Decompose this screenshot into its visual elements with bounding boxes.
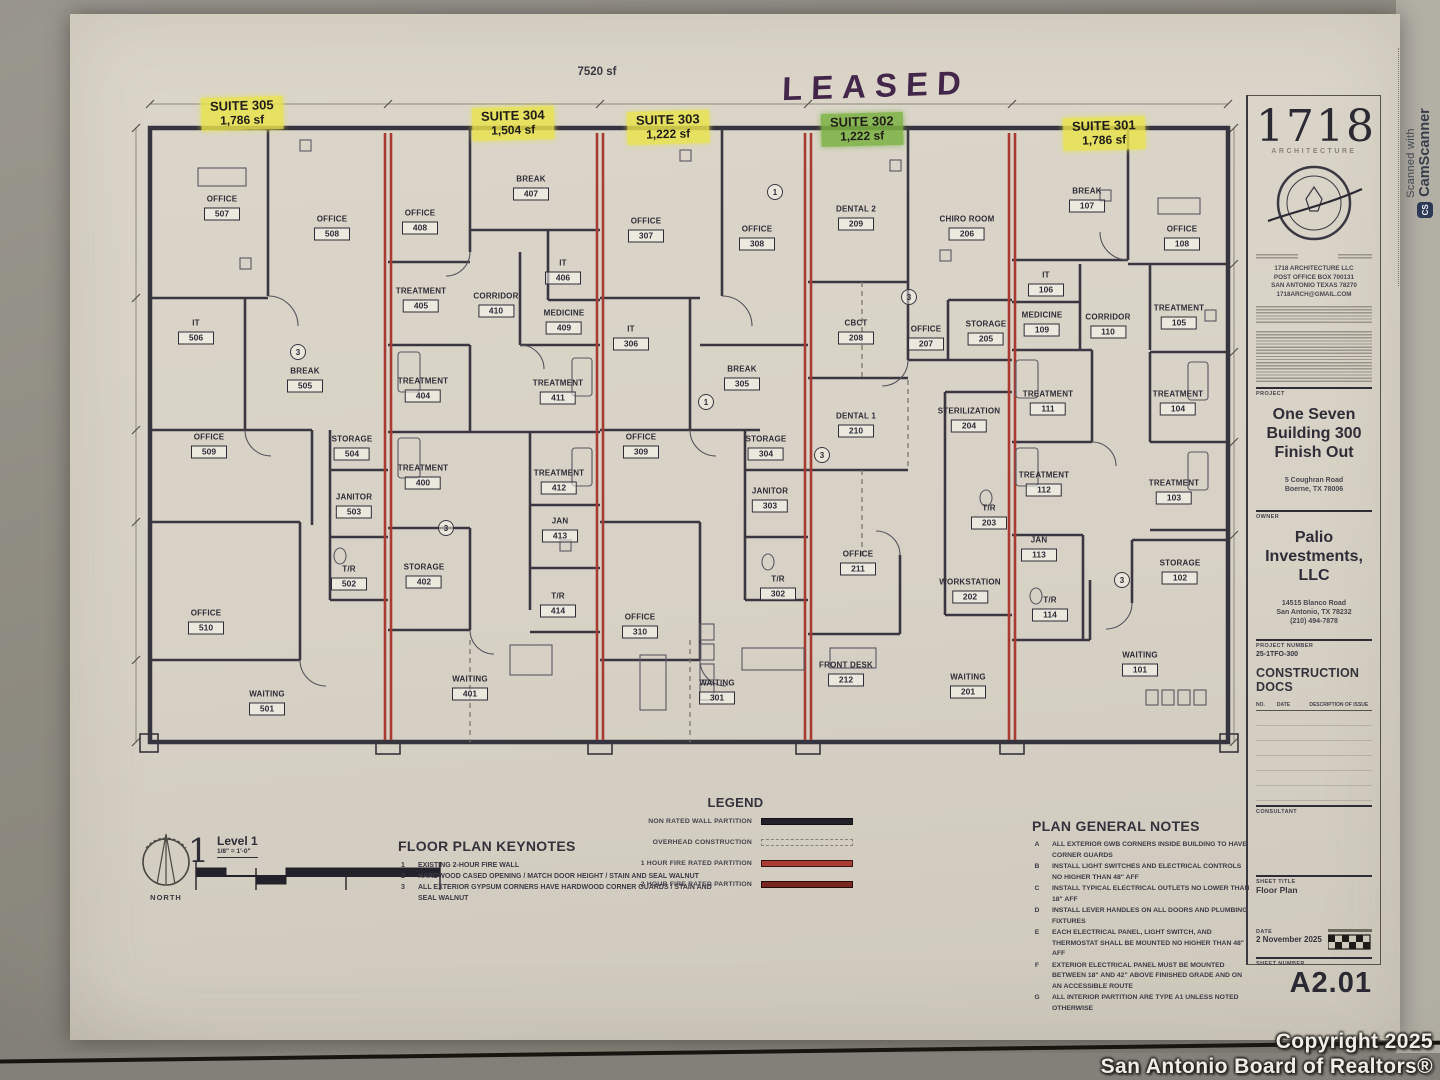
room-name: JAN — [542, 517, 578, 526]
project-number: 25-1TFO-300 — [1256, 651, 1372, 658]
revision-column: DESCRIPTION OF ISSUE — [1309, 702, 1372, 708]
room-label: OFFICE309 — [623, 433, 659, 460]
room-label: IT506 — [178, 319, 214, 346]
room-name: OFFICE — [908, 325, 944, 334]
room-number: 410 — [478, 305, 514, 318]
room-number: 402 — [406, 576, 442, 589]
room-number: 110 — [1090, 326, 1126, 339]
general-note-item: CINSTALL TYPICAL ELECTRICAL OUTLETS NO L… — [1032, 884, 1250, 905]
phase-title: CONSTRUCTION DOCS — [1256, 666, 1372, 694]
project-address-line: Boerne, TX 78006 — [1256, 485, 1372, 494]
room-label: CBCT208 — [838, 319, 874, 346]
seal-date-noise — [1256, 254, 1298, 259]
room-label: WAITING401 — [452, 675, 488, 702]
room-name: IT — [545, 259, 581, 268]
general-notes-list: AALL EXTERIOR GWB CORNERS INSIDE BUILDIN… — [1032, 840, 1250, 1014]
room-label: TREATMENT112 — [1019, 471, 1070, 498]
room-name: MEDICINE — [544, 309, 585, 318]
legend: LEGEND NON RATED WALL PARTITIONOVERHEAD … — [618, 795, 853, 902]
firm-address: 1718 ARCHITECTURE LLCPOST OFFICE BOX 700… — [1256, 265, 1372, 299]
room-label: BREAK107 — [1069, 187, 1105, 214]
room-label: T/R203 — [971, 504, 1007, 531]
suite-area: 1,786 sf — [210, 112, 274, 128]
room-name: BREAK — [287, 367, 323, 376]
room-number: 404 — [405, 390, 441, 403]
room-number: 310 — [622, 626, 658, 639]
room-label: BREAK305 — [724, 365, 760, 392]
legend-line-sample — [761, 881, 853, 888]
room-label: OFFICE310 — [622, 613, 658, 640]
room-label: JANITOR503 — [336, 493, 372, 520]
room-label: TREATMENT104 — [1153, 390, 1204, 417]
room-name: TREATMENT — [398, 377, 449, 386]
room-label: TREATMENT103 — [1149, 479, 1200, 506]
scanned-with-label: Scanned with — [1405, 128, 1417, 198]
room-name: STORAGE — [746, 435, 787, 444]
room-name: BREAK — [1069, 187, 1105, 196]
suite-area: 1,222 sf — [830, 128, 894, 144]
room-name: TREATMENT — [398, 464, 449, 473]
room-name: TREATMENT — [1149, 479, 1200, 488]
room-number: 112 — [1026, 484, 1062, 497]
room-label: TREATMENT111 — [1023, 390, 1074, 417]
room-label: BREAK505 — [287, 367, 323, 394]
room-label: OFFICE308 — [739, 225, 775, 252]
suite-tag: SUITE 3011,786 sf — [1063, 116, 1145, 151]
room-label: TREATMENT400 — [398, 464, 449, 491]
room-name: OFFICE — [402, 209, 438, 218]
legend-rows: NON RATED WALL PARTITIONOVERHEAD CONSTRU… — [618, 818, 853, 888]
room-number: 509 — [191, 446, 227, 459]
room-label: JAN413 — [542, 517, 578, 544]
room-name: STORAGE — [404, 563, 445, 572]
room-number: 505 — [287, 380, 323, 393]
legend-line-sample — [761, 818, 853, 825]
room-name: JANITOR — [336, 493, 372, 502]
camscanner-icon: CS — [1417, 202, 1433, 218]
room-number: 111 — [1030, 403, 1066, 416]
legend-label: OVERHEAD CONSTRUCTION — [653, 839, 752, 846]
room-name: T/R — [1032, 596, 1068, 605]
room-name: OFFICE — [1164, 225, 1200, 234]
room-name: CBCT — [838, 319, 874, 328]
room-number: 502 — [331, 578, 367, 591]
general-note-item: FEXTERIOR ELECTRICAL PANEL MUST BE MOUNT… — [1032, 961, 1250, 993]
room-label: OFFICE509 — [191, 433, 227, 460]
room-number: 409 — [546, 322, 582, 335]
room-name: CORRIDOR — [1085, 313, 1130, 322]
room-name: CORRIDOR — [473, 292, 518, 301]
revision-table-header: NO.DATEDESCRIPTION OF ISSUE — [1256, 702, 1372, 711]
legend-label: 2 HOUR FIRE RATED PARTITION — [641, 881, 752, 888]
room-label: JANITOR303 — [752, 487, 788, 514]
room-label: OFFICE207 — [908, 325, 944, 352]
room-name: TREATMENT — [396, 287, 447, 296]
room-label: CORRIDOR410 — [473, 292, 518, 319]
room-name: IT — [178, 319, 214, 328]
room-name: IT — [1028, 271, 1064, 280]
sheet-title: Floor Plan — [1256, 885, 1372, 895]
room-name: WAITING — [950, 673, 986, 682]
room-name: OFFICE — [204, 195, 240, 204]
camscanner-cutline — [1398, 48, 1399, 286]
room-name: TREATMENT — [1023, 390, 1074, 399]
firm-address-line: 1718 ARCHITECTURE LLC — [1256, 265, 1372, 274]
room-name: OFFICE — [622, 613, 658, 622]
architect-seal — [1256, 159, 1372, 251]
room-name: WAITING — [452, 675, 488, 684]
room-number: 103 — [1156, 492, 1192, 505]
room-label: OFFICE507 — [204, 195, 240, 222]
room-name: BREAK — [513, 175, 549, 184]
room-number: 105 — [1161, 317, 1197, 330]
room-number: 205 — [968, 333, 1004, 346]
room-number: 202 — [952, 591, 988, 604]
room-name: OFFICE — [314, 215, 350, 224]
room-number: 308 — [739, 238, 775, 251]
note-letter: E — [1032, 928, 1042, 960]
legend-row: OVERHEAD CONSTRUCTION — [618, 839, 853, 846]
project-name-line: Finish Out — [1256, 443, 1372, 462]
note-text: INSTALL LIGHT SWITCHES AND ELECTRICAL CO… — [1052, 862, 1250, 883]
room-label: CHIRO ROOM206 — [940, 215, 995, 242]
room-number: 411 — [540, 392, 576, 405]
room-label: JAN113 — [1021, 536, 1057, 563]
suite-tag: SUITE 3041,504 sf — [472, 106, 554, 141]
room-label: T/R302 — [760, 575, 796, 602]
room-number: 101 — [1122, 664, 1158, 677]
general-note-item: AALL EXTERIOR GWB CORNERS INSIDE BUILDIN… — [1032, 840, 1250, 861]
room-name: WORKSTATION — [939, 578, 1000, 587]
room-name: STORAGE — [332, 435, 373, 444]
plan-general-notes: PLAN GENERAL NOTES AALL EXTERIOR GWB COR… — [1032, 818, 1250, 1015]
room-label: STERILIZATION204 — [938, 407, 1000, 434]
note-text: INSTALL TYPICAL ELECTRICAL OUTLETS NO LO… — [1052, 884, 1250, 905]
room-number: 302 — [760, 588, 796, 601]
room-number: 408 — [402, 222, 438, 235]
room-name: WAITING — [249, 690, 285, 699]
room-label: OFFICE211 — [840, 550, 876, 577]
room-name: T/R — [760, 575, 796, 584]
note-text: EACH ELECTRICAL PANEL, LIGHT SWITCH, AND… — [1052, 928, 1250, 960]
note-letter: F — [1032, 961, 1042, 993]
keynote-bubble: 3 — [901, 289, 917, 305]
room-number: 107 — [1069, 200, 1105, 213]
room-name: JAN — [1021, 536, 1057, 545]
consultant-label: CONSULTANT — [1256, 809, 1372, 815]
general-note-item: BINSTALL LIGHT SWITCHES AND ELECTRICAL C… — [1032, 862, 1250, 883]
room-number: 406 — [545, 272, 581, 285]
room-label: WAITING501 — [249, 690, 285, 717]
room-label: STORAGE402 — [404, 563, 445, 590]
note-letter: A — [1032, 840, 1042, 861]
room-label: BREAK407 — [513, 175, 549, 202]
room-name: STERILIZATION — [938, 407, 1000, 416]
suite-tag: SUITE 3021,222 sf — [821, 112, 903, 147]
general-note-item: DINSTALL LEVER HANDLES ON ALL DOORS AND … — [1032, 906, 1250, 927]
room-name: MEDICINE — [1022, 311, 1063, 320]
room-name: BREAK — [724, 365, 760, 374]
room-name: JANITOR — [752, 487, 788, 496]
room-name: IT — [613, 325, 649, 334]
room-label: WAITING301 — [699, 679, 735, 706]
room-number: 510 — [188, 622, 224, 635]
floor-plan-sheet: OFFICE507OFFICE508IT506BREAK505OFFICE509… — [0, 0, 1440, 1080]
room-number: 113 — [1021, 549, 1057, 562]
room-number: 201 — [950, 686, 986, 699]
room-number: 109 — [1024, 324, 1060, 337]
suite-area: 1,504 sf — [481, 122, 545, 138]
room-number: 211 — [840, 563, 876, 576]
room-number: 508 — [314, 228, 350, 241]
suite-area: 1,222 sf — [636, 126, 700, 142]
note-letter: C — [1032, 884, 1042, 905]
firm-address-line: SAN ANTONIO TEXAS 78270 — [1256, 282, 1372, 291]
room-label: WORKSTATION202 — [939, 578, 1000, 605]
note-letter: B — [1032, 862, 1042, 883]
note-text: EXTERIOR ELECTRICAL PANEL MUST BE MOUNTE… — [1052, 961, 1250, 993]
room-name: OFFICE — [188, 609, 224, 618]
room-name: OFFICE — [191, 433, 227, 442]
architect-logo-subtitle: ARCHITECTURE — [1256, 148, 1372, 155]
room-number: 206 — [949, 228, 985, 241]
project-number-label: PROJECT NUMBER — [1256, 643, 1372, 649]
room-label: STORAGE304 — [746, 435, 787, 462]
project-name: One SevenBuilding 300Finish Out — [1256, 405, 1372, 462]
camscanner-label: CamScanner — [1417, 108, 1433, 197]
keynote-bubble: 3 — [290, 344, 306, 360]
project-address: 5 Coughran RoadBoerne, TX 78006 — [1256, 476, 1372, 494]
room-label: T/R502 — [331, 565, 367, 592]
room-label: CORRIDOR110 — [1085, 313, 1130, 340]
room-name: T/R — [971, 504, 1007, 513]
room-number: 507 — [204, 208, 240, 221]
owner-name-line: Investments, LLC — [1256, 547, 1372, 585]
keynote-bubble: 3 — [438, 520, 454, 536]
room-number: 207 — [908, 338, 944, 351]
room-label: TREATMENT105 — [1154, 304, 1205, 331]
room-number: 506 — [178, 332, 214, 345]
room-name: TREATMENT — [1153, 390, 1204, 399]
keynote-bubble: 1 — [698, 394, 714, 410]
firm-address-line: 1718ARCH@GMAIL.COM — [1256, 291, 1372, 300]
room-label: OFFICE510 — [188, 609, 224, 636]
room-label: TREATMENT405 — [396, 287, 447, 314]
revision-column: NO. — [1256, 702, 1277, 708]
room-number: 305 — [724, 378, 760, 391]
room-label: STORAGE205 — [966, 320, 1007, 347]
level-label: Level 1 — [217, 834, 258, 848]
copyright-line-2: San Antonio Board of Realtors® — [1101, 1054, 1433, 1079]
room-number: 400 — [405, 477, 441, 490]
room-number: 504 — [334, 448, 370, 461]
room-name: OFFICE — [623, 433, 659, 442]
room-number: 210 — [838, 425, 874, 438]
sheet-date: 2 November 2025 — [1256, 935, 1322, 944]
architect-logo: 1718 — [1256, 106, 1372, 148]
legend-title: LEGEND — [618, 795, 853, 810]
legend-line-sample — [761, 839, 853, 846]
room-name: OFFICE — [739, 225, 775, 234]
keynote-bubble: 1 — [767, 184, 783, 200]
room-name: DENTAL 1 — [836, 412, 876, 421]
room-number: 405 — [403, 300, 439, 313]
room-label: WAITING101 — [1122, 651, 1158, 678]
legend-line-sample — [761, 860, 853, 867]
legend-row: 1 HOUR FIRE RATED PARTITION — [618, 860, 853, 867]
keynote-bubble: 3 — [1114, 572, 1130, 588]
room-number: 306 — [613, 338, 649, 351]
room-name: FRONT DESK — [819, 661, 873, 670]
title-block: 1718 ARCHITECTURE 1718 ARCHITECTURE LLCP… — [1246, 95, 1381, 965]
keynote-bubble: 3 — [814, 447, 830, 463]
general-note-item: EEACH ELECTRICAL PANEL, LIGHT SWITCH, AN… — [1032, 928, 1250, 960]
scale-label: 1/8" = 1'-0" — [217, 848, 258, 855]
project-address-line: 5 Coughran Road — [1256, 476, 1372, 485]
room-label: STORAGE102 — [1160, 559, 1201, 586]
room-label: OFFICE108 — [1164, 225, 1200, 252]
room-number: 204 — [951, 420, 987, 433]
suite-tag: SUITE 3051,786 sf — [201, 96, 283, 131]
room-name: WAITING — [1122, 651, 1158, 660]
room-number: 102 — [1162, 572, 1198, 585]
camscanner-watermark: Scanned with CS CamScanner — [1400, 57, 1438, 269]
room-name: T/R — [540, 592, 576, 601]
revision-rows — [1256, 711, 1372, 801]
project-name-line: Building 300 — [1256, 424, 1372, 443]
room-number: 304 — [748, 448, 784, 461]
room-label: IT306 — [613, 325, 649, 352]
room-label: T/R414 — [540, 592, 576, 619]
owner-address-line: 14515 Blanco Road — [1256, 599, 1372, 608]
room-number: 104 — [1160, 403, 1196, 416]
room-number: 301 — [699, 692, 735, 705]
room-label: MEDICINE109 — [1022, 311, 1063, 338]
room-number: 108 — [1164, 238, 1200, 251]
room-number: 309 — [623, 446, 659, 459]
owner-label: OWNER — [1256, 514, 1372, 520]
room-name: TREATMENT — [1154, 304, 1205, 313]
room-number: 307 — [628, 230, 664, 243]
project-label: PROJECT — [1256, 391, 1372, 397]
leased-annotation: LEASED — [781, 64, 970, 109]
room-number: 413 — [542, 530, 578, 543]
room-number: 203 — [971, 517, 1007, 530]
note-text: INSTALL LEVER HANDLES ON ALL DOORS AND P… — [1052, 906, 1250, 927]
note-text: ALL INTERIOR PARTITION ARE TYPE A1 UNLES… — [1052, 993, 1250, 1014]
room-label: TREATMENT412 — [534, 469, 585, 496]
room-label: FRONT DESK212 — [819, 661, 873, 688]
room-name: WAITING — [699, 679, 735, 688]
suite-area: 1,786 sf — [1072, 132, 1136, 148]
room-label: WAITING201 — [950, 673, 986, 700]
room-name: OFFICE — [628, 217, 664, 226]
room-label: DENTAL 2209 — [836, 205, 876, 232]
owner-name: PalioInvestments, LLC — [1256, 528, 1372, 585]
level-figure: 1 Level 1 1/8" = 1'-0" — [188, 834, 258, 867]
room-label: DENTAL 1210 — [836, 412, 876, 439]
figure-number: 1 — [188, 834, 209, 867]
room-name: TREATMENT — [533, 379, 584, 388]
room-number: 414 — [540, 605, 576, 618]
owner-name-line: Palio — [1256, 528, 1372, 547]
room-label: TREATMENT404 — [398, 377, 449, 404]
disclaimer-paragraph-2 — [1256, 331, 1372, 383]
room-label: TREATMENT411 — [533, 379, 584, 406]
room-label: OFFICE307 — [628, 217, 664, 244]
room-name: OFFICE — [840, 550, 876, 559]
room-number: 209 — [838, 218, 874, 231]
note-letter: G — [1032, 993, 1042, 1014]
room-number: 212 — [828, 674, 864, 687]
room-name: CHIRO ROOM — [940, 215, 995, 224]
legend-row: 2 HOUR FIRE RATED PARTITION — [618, 881, 853, 888]
seal-exp-noise — [1338, 254, 1372, 259]
room-number: 303 — [752, 500, 788, 513]
general-notes-title: PLAN GENERAL NOTES — [1032, 818, 1250, 834]
room-name: T/R — [331, 565, 367, 574]
note-letter: D — [1032, 906, 1042, 927]
sheet-number: A2.01 — [1256, 967, 1372, 1000]
room-label: T/R114 — [1032, 596, 1068, 623]
room-number: 412 — [541, 482, 577, 495]
room-number: 208 — [838, 332, 874, 345]
room-label: OFFICE408 — [402, 209, 438, 236]
north-label: NORTH — [150, 893, 182, 902]
graphic-scale-stamp — [1328, 929, 1372, 951]
room-number: 407 — [513, 188, 549, 201]
owner-address-line: (210) 494-7878 — [1256, 617, 1372, 626]
room-name: TREATMENT — [1019, 471, 1070, 480]
owner-address: 14515 Blanco RoadSan Antonio, TX 78232(2… — [1256, 599, 1372, 626]
room-label: IT106 — [1028, 271, 1064, 298]
legend-label: 1 HOUR FIRE RATED PARTITION — [641, 860, 752, 867]
total-area-label: 7520 sf — [577, 66, 616, 78]
note-text: ALL EXTERIOR GWB CORNERS INSIDE BUILDING… — [1052, 840, 1250, 861]
project-name-line: One Seven — [1256, 405, 1372, 424]
firm-address-line: POST OFFICE BOX 700131 — [1256, 274, 1372, 283]
legend-row: NON RATED WALL PARTITION — [618, 818, 853, 825]
room-label: STORAGE504 — [332, 435, 373, 462]
room-number: 503 — [336, 506, 372, 519]
room-number: 106 — [1028, 284, 1064, 297]
disclaimer-paragraph-1 — [1256, 306, 1372, 323]
room-name: STORAGE — [1160, 559, 1201, 568]
room-name: TREATMENT — [534, 469, 585, 478]
copyright-line-1: Copyright 2025 — [1101, 1029, 1433, 1054]
owner-address-line: San Antonio, TX 78232 — [1256, 608, 1372, 617]
room-label: MEDICINE409 — [544, 309, 585, 336]
room-name: STORAGE — [966, 320, 1007, 329]
room-name: DENTAL 2 — [836, 205, 876, 214]
room-number: 401 — [452, 688, 488, 701]
copyright-watermark: Copyright 2025 San Antonio Board of Real… — [1101, 1029, 1433, 1079]
room-label: OFFICE508 — [314, 215, 350, 242]
legend-label: NON RATED WALL PARTITION — [648, 818, 752, 825]
room-number: 114 — [1032, 609, 1068, 622]
general-note-item: GALL INTERIOR PARTITION ARE TYPE A1 UNLE… — [1032, 993, 1250, 1014]
room-number: 501 — [249, 703, 285, 716]
room-label: IT406 — [545, 259, 581, 286]
revision-column: DATE — [1277, 702, 1309, 708]
suite-tag: SUITE 3031,222 sf — [627, 110, 709, 145]
